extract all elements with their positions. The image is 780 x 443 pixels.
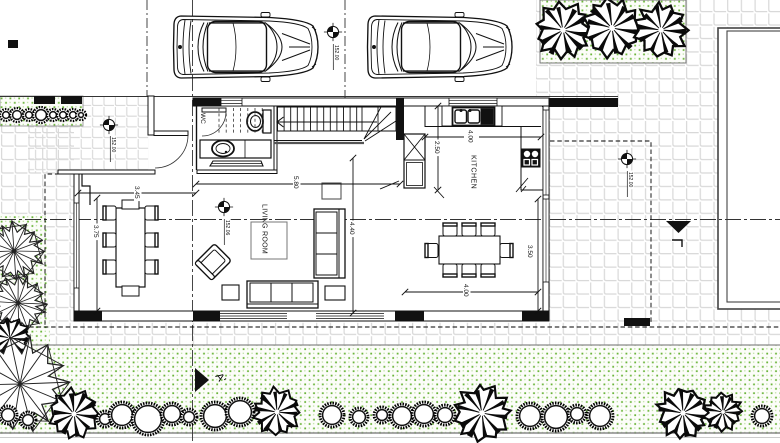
svg-text:KITCHEN: KITCHEN <box>470 155 477 189</box>
svg-text:4.00: 4.00 <box>462 284 469 297</box>
svg-text:5.80: 5.80 <box>292 176 299 189</box>
svg-text:152.00: 152.00 <box>627 172 633 188</box>
svg-text:3.45: 3.45 <box>133 186 140 199</box>
svg-text:2.50: 2.50 <box>433 141 440 154</box>
svg-text:LIVING ROOM: LIVING ROOM <box>261 204 268 254</box>
svg-text:3.75: 3.75 <box>92 225 99 238</box>
svg-text:152.00: 152.00 <box>110 137 116 153</box>
svg-text:4.00: 4.00 <box>467 130 474 143</box>
svg-text:4.40: 4.40 <box>348 222 355 235</box>
svg-text:WC: WC <box>199 113 206 124</box>
svg-text:3.50: 3.50 <box>526 245 533 258</box>
svg-text:152.00: 152.00 <box>333 45 339 61</box>
svg-text:152.06: 152.06 <box>224 220 230 236</box>
